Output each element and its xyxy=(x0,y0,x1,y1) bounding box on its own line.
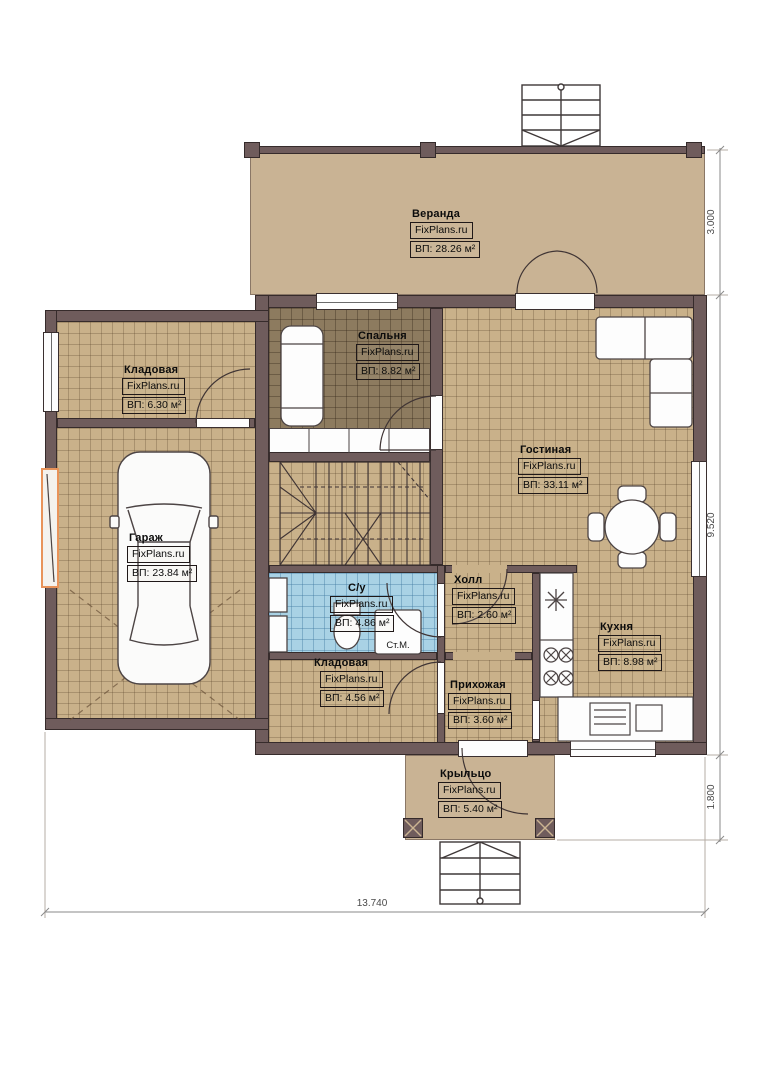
brand-label: FixPlans.ru xyxy=(448,693,511,710)
room-area: ВП: 28.26 м² xyxy=(410,241,480,258)
room-name: С/у xyxy=(348,582,394,594)
dim-right-middle-label: 9.520 xyxy=(706,512,717,537)
room-area: ВП: 23.84 м² xyxy=(127,565,197,582)
room-label-kitchen: Кухня FixPlans.ru ВП: 8.98 м² xyxy=(598,621,662,671)
room-label-hall: Холл FixPlans.ru ВП: 2.60 м² xyxy=(452,574,516,624)
room-label-entry: Прихожая FixPlans.ru ВП: 3.60 м² xyxy=(448,679,512,729)
bedroom-door-arc xyxy=(380,396,436,450)
room-name: Крыльцо xyxy=(440,768,502,780)
room-area: ВП: 6.30 м² xyxy=(122,397,186,414)
brand-label: FixPlans.ru xyxy=(122,378,185,395)
room-name: Кладовая xyxy=(314,657,384,669)
bed xyxy=(281,326,323,426)
room-label-storage-top: Кладовая FixPlans.ru ВП: 6.30 м² xyxy=(122,364,186,414)
brand-label: FixPlans.ru xyxy=(320,671,383,688)
brand-label: FixPlans.ru xyxy=(410,222,473,239)
room-label-garage: Гараж FixPlans.ru ВП: 23.84 м² xyxy=(127,532,197,582)
brand-label: FixPlans.ru xyxy=(452,588,515,605)
room-name: Кладовая xyxy=(124,364,186,376)
storage-bottom-door-arc xyxy=(389,662,441,714)
room-name: Прихожая xyxy=(450,679,512,691)
veranda-door-arc-right xyxy=(557,251,597,293)
brand-label: FixPlans.ru xyxy=(330,596,393,613)
brand-label: FixPlans.ru xyxy=(518,458,581,475)
room-label-porch: Крыльцо FixPlans.ru ВП: 5.40 м² xyxy=(438,768,502,818)
brand-label: FixPlans.ru xyxy=(598,635,661,652)
room-label-living: Гостиная FixPlans.ru ВП: 33.11 м² xyxy=(518,444,588,494)
room-area: ВП: 4.56 м² xyxy=(320,690,384,707)
veranda-door-arc-left xyxy=(517,251,557,293)
room-area: ВП: 33.11 м² xyxy=(518,477,588,494)
room-name: Холл xyxy=(454,574,516,586)
room-name: Кухня xyxy=(600,621,662,633)
room-label-veranda: Веранда FixPlans.ru ВП: 28.26 м² xyxy=(410,208,480,258)
dim-bottom-label: 13.740 xyxy=(357,898,388,909)
room-area: ВП: 8.98 м² xyxy=(598,654,662,671)
staircase xyxy=(280,462,430,565)
room-name: Веранда xyxy=(412,208,480,220)
floor-plan: Ст.М. 3.000 9.520 1.800 13.740 Веранда F… xyxy=(0,0,763,1080)
dim-right-bottom-label: 1.800 xyxy=(706,784,717,809)
corner-sofa xyxy=(596,317,692,427)
porch-post-hatch xyxy=(405,820,553,836)
room-label-bedroom: Спальня FixPlans.ru ВП: 8.82 м² xyxy=(356,330,420,380)
dining-set xyxy=(588,486,676,568)
room-label-bathroom: С/у FixPlans.ru ВП: 4.86 м² xyxy=(330,582,394,632)
brand-label: FixPlans.ru xyxy=(438,782,501,799)
washing-machine-label: Ст.М. xyxy=(386,640,409,651)
hood-symbol xyxy=(545,589,567,611)
cabinet-dividers xyxy=(309,428,389,453)
brand-label: FixPlans.ru xyxy=(356,344,419,361)
brand-label: FixPlans.ru xyxy=(127,546,190,563)
room-name: Гараж xyxy=(129,532,197,544)
room-area: ВП: 3.60 м² xyxy=(448,712,512,729)
dim-right-top-label: 3.000 xyxy=(706,209,717,234)
room-label-storage-bottom: Кладовая FixPlans.ru ВП: 4.56 м² xyxy=(312,657,384,707)
room-area: ВП: 5.40 м² xyxy=(438,801,502,818)
room-name: Гостиная xyxy=(520,444,588,456)
veranda-steps xyxy=(522,84,600,146)
garage-gate-leaf xyxy=(47,474,54,582)
storage-top-door-arc xyxy=(196,369,250,423)
room-area: ВП: 8.82 м² xyxy=(356,363,420,380)
dim-bottom xyxy=(41,908,709,916)
room-name: Спальня xyxy=(358,330,420,342)
kitchen-sink xyxy=(590,703,630,735)
plan-linework: Ст.М. 3.000 9.520 1.800 13.740 xyxy=(0,0,763,1080)
dim-right xyxy=(716,146,724,844)
room-area: ВП: 4.86 м² xyxy=(330,615,394,632)
porch-steps xyxy=(440,842,520,904)
room-area: ВП: 2.60 м² xyxy=(452,607,516,624)
